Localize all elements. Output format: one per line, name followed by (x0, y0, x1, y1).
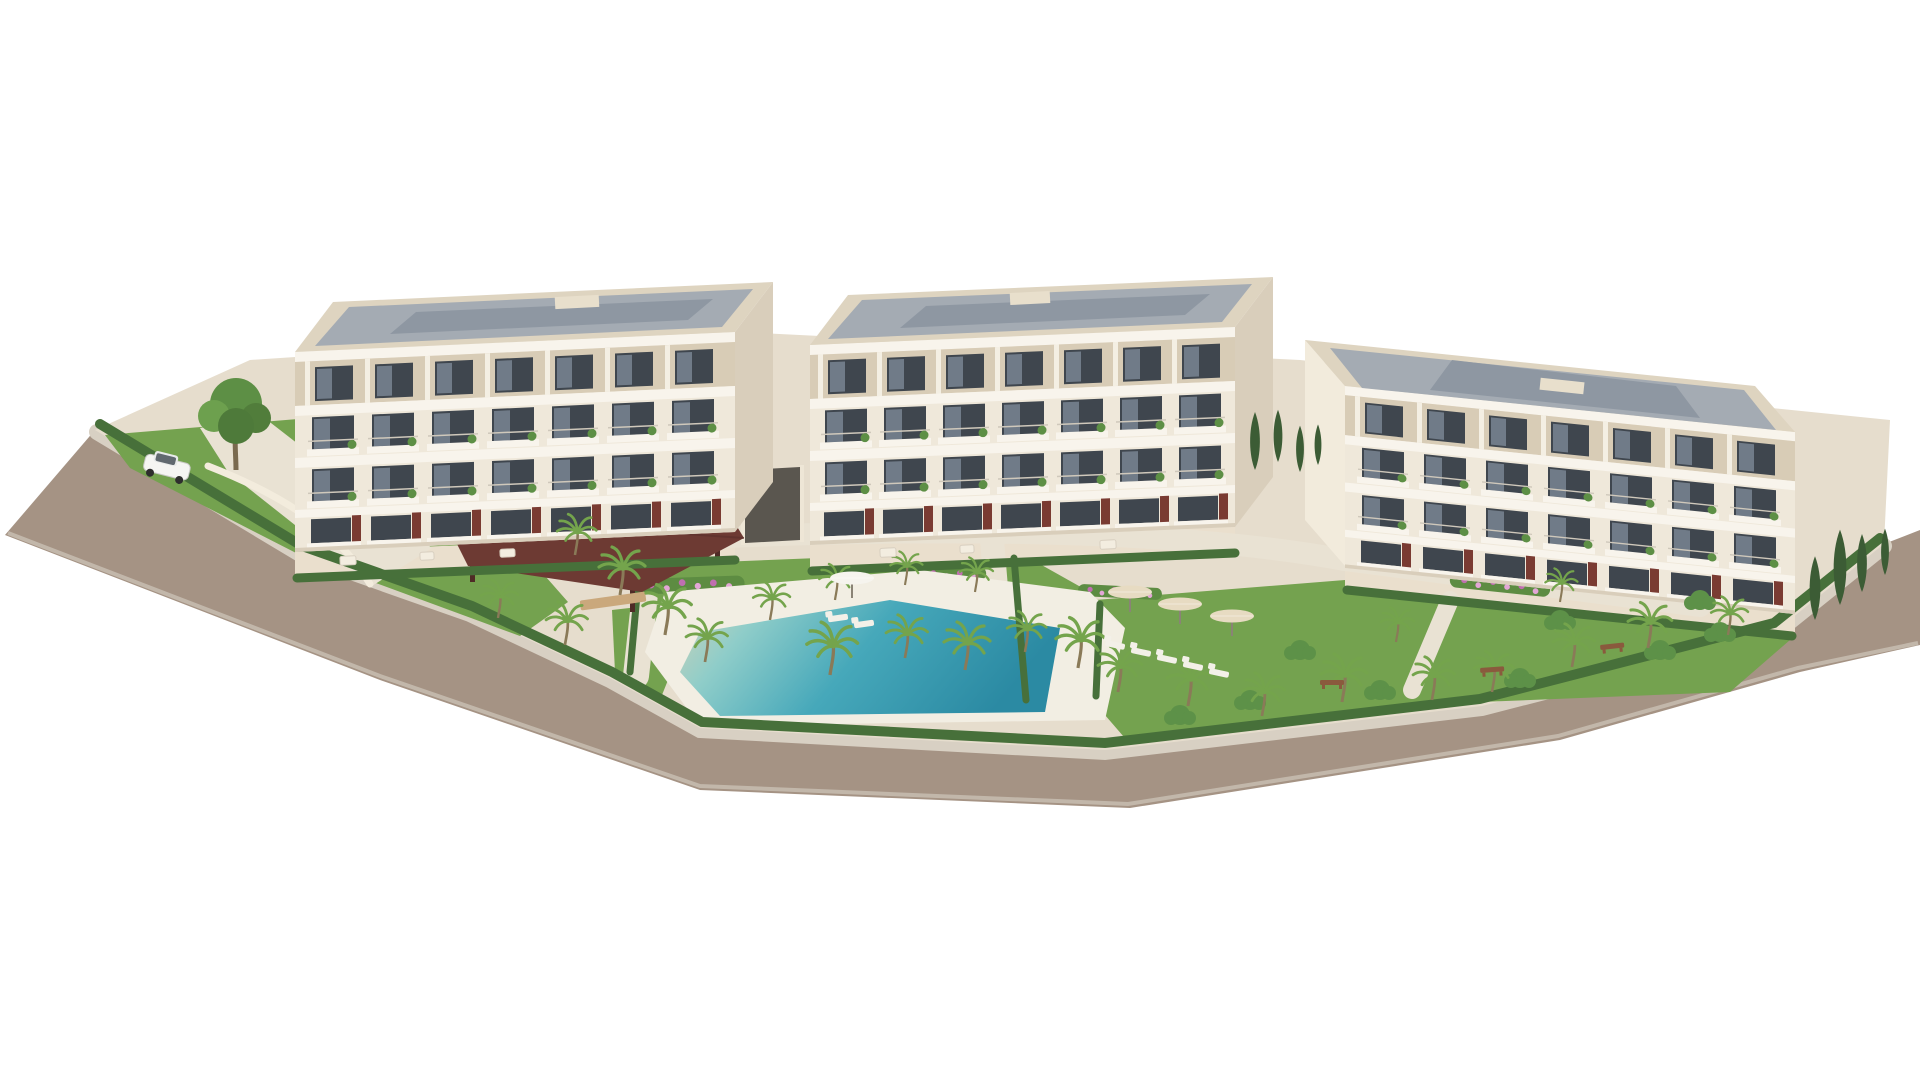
render-canvas (0, 0, 1920, 1080)
roof-box (555, 295, 600, 309)
terrace-furniture (420, 552, 434, 561)
balcony-bay (1667, 526, 1719, 567)
balcony-bay (1605, 520, 1657, 561)
building-middle (810, 277, 1273, 545)
ground-terrace-bay (997, 501, 1051, 534)
balcony-bay (1357, 495, 1409, 536)
architectural-render (0, 0, 1920, 1080)
balcony-bay (820, 408, 872, 449)
balcony-bay (879, 406, 931, 447)
balcony-bay (1729, 485, 1781, 526)
ground-terrace-bay (667, 499, 721, 532)
balcony-bay (607, 453, 659, 494)
balcony-bay (1357, 447, 1409, 488)
balcony-bay (1605, 473, 1657, 514)
balcony-bay (1729, 533, 1781, 574)
balcony-bay (997, 401, 1049, 442)
balcony-bay (1419, 454, 1471, 495)
balcony-bay (997, 453, 1049, 494)
ground-terrace-bay (1174, 493, 1228, 526)
ground-terrace-bay (607, 501, 661, 534)
balcony-bay (607, 401, 659, 442)
ground-terrace-bay (427, 510, 481, 543)
balcony-bay (1667, 479, 1719, 520)
balcony-bay (487, 459, 539, 500)
balcony-bay (307, 415, 359, 456)
balcony-bay (879, 458, 931, 499)
balcony-bay (427, 410, 479, 451)
terrace-furniture (500, 549, 515, 558)
terrace-furniture (1100, 540, 1116, 550)
balcony-bay (1056, 398, 1108, 439)
building-middle-facade (810, 327, 1235, 545)
balcony-bay (1543, 466, 1595, 507)
balcony-bay (1115, 396, 1167, 437)
ground-terrace-bay (938, 503, 992, 536)
balcony-bay (1115, 448, 1167, 489)
roof-box (1010, 291, 1051, 305)
building-left (295, 282, 773, 552)
balcony-bay (938, 403, 990, 444)
balcony-bay (667, 399, 719, 440)
balcony-bay (547, 456, 599, 497)
ground-terrace-bay (879, 506, 933, 539)
ground-terrace-bay (307, 515, 361, 548)
ground-terrace-bay (1115, 496, 1169, 529)
balcony-bay (1543, 514, 1595, 555)
balcony-bay (667, 451, 719, 492)
balcony-bay (427, 462, 479, 503)
balcony-bay (1174, 393, 1226, 434)
terrace-furniture (340, 556, 356, 566)
building-left-facade (295, 332, 735, 552)
pool-area (645, 570, 1125, 726)
balcony-bay (1056, 450, 1108, 491)
balcony-bay (307, 467, 359, 508)
terrace-furniture (880, 548, 896, 558)
ground-terrace-bay (1056, 498, 1110, 531)
balcony-bay (820, 460, 872, 501)
balcony-bay (1174, 445, 1226, 486)
ground-terrace-bay (487, 507, 541, 540)
balcony-bay (1481, 460, 1533, 501)
balcony-bay (547, 404, 599, 445)
balcony-bay (367, 412, 419, 453)
balcony-bay (367, 464, 419, 505)
ground-terrace-bay (820, 508, 874, 541)
terrace-furniture (960, 545, 974, 554)
balcony-bay (1481, 507, 1533, 548)
balcony-bay (938, 455, 990, 496)
balcony-bay (1419, 501, 1471, 542)
balcony-bay (487, 407, 539, 448)
ground-terrace-bay (367, 512, 421, 545)
